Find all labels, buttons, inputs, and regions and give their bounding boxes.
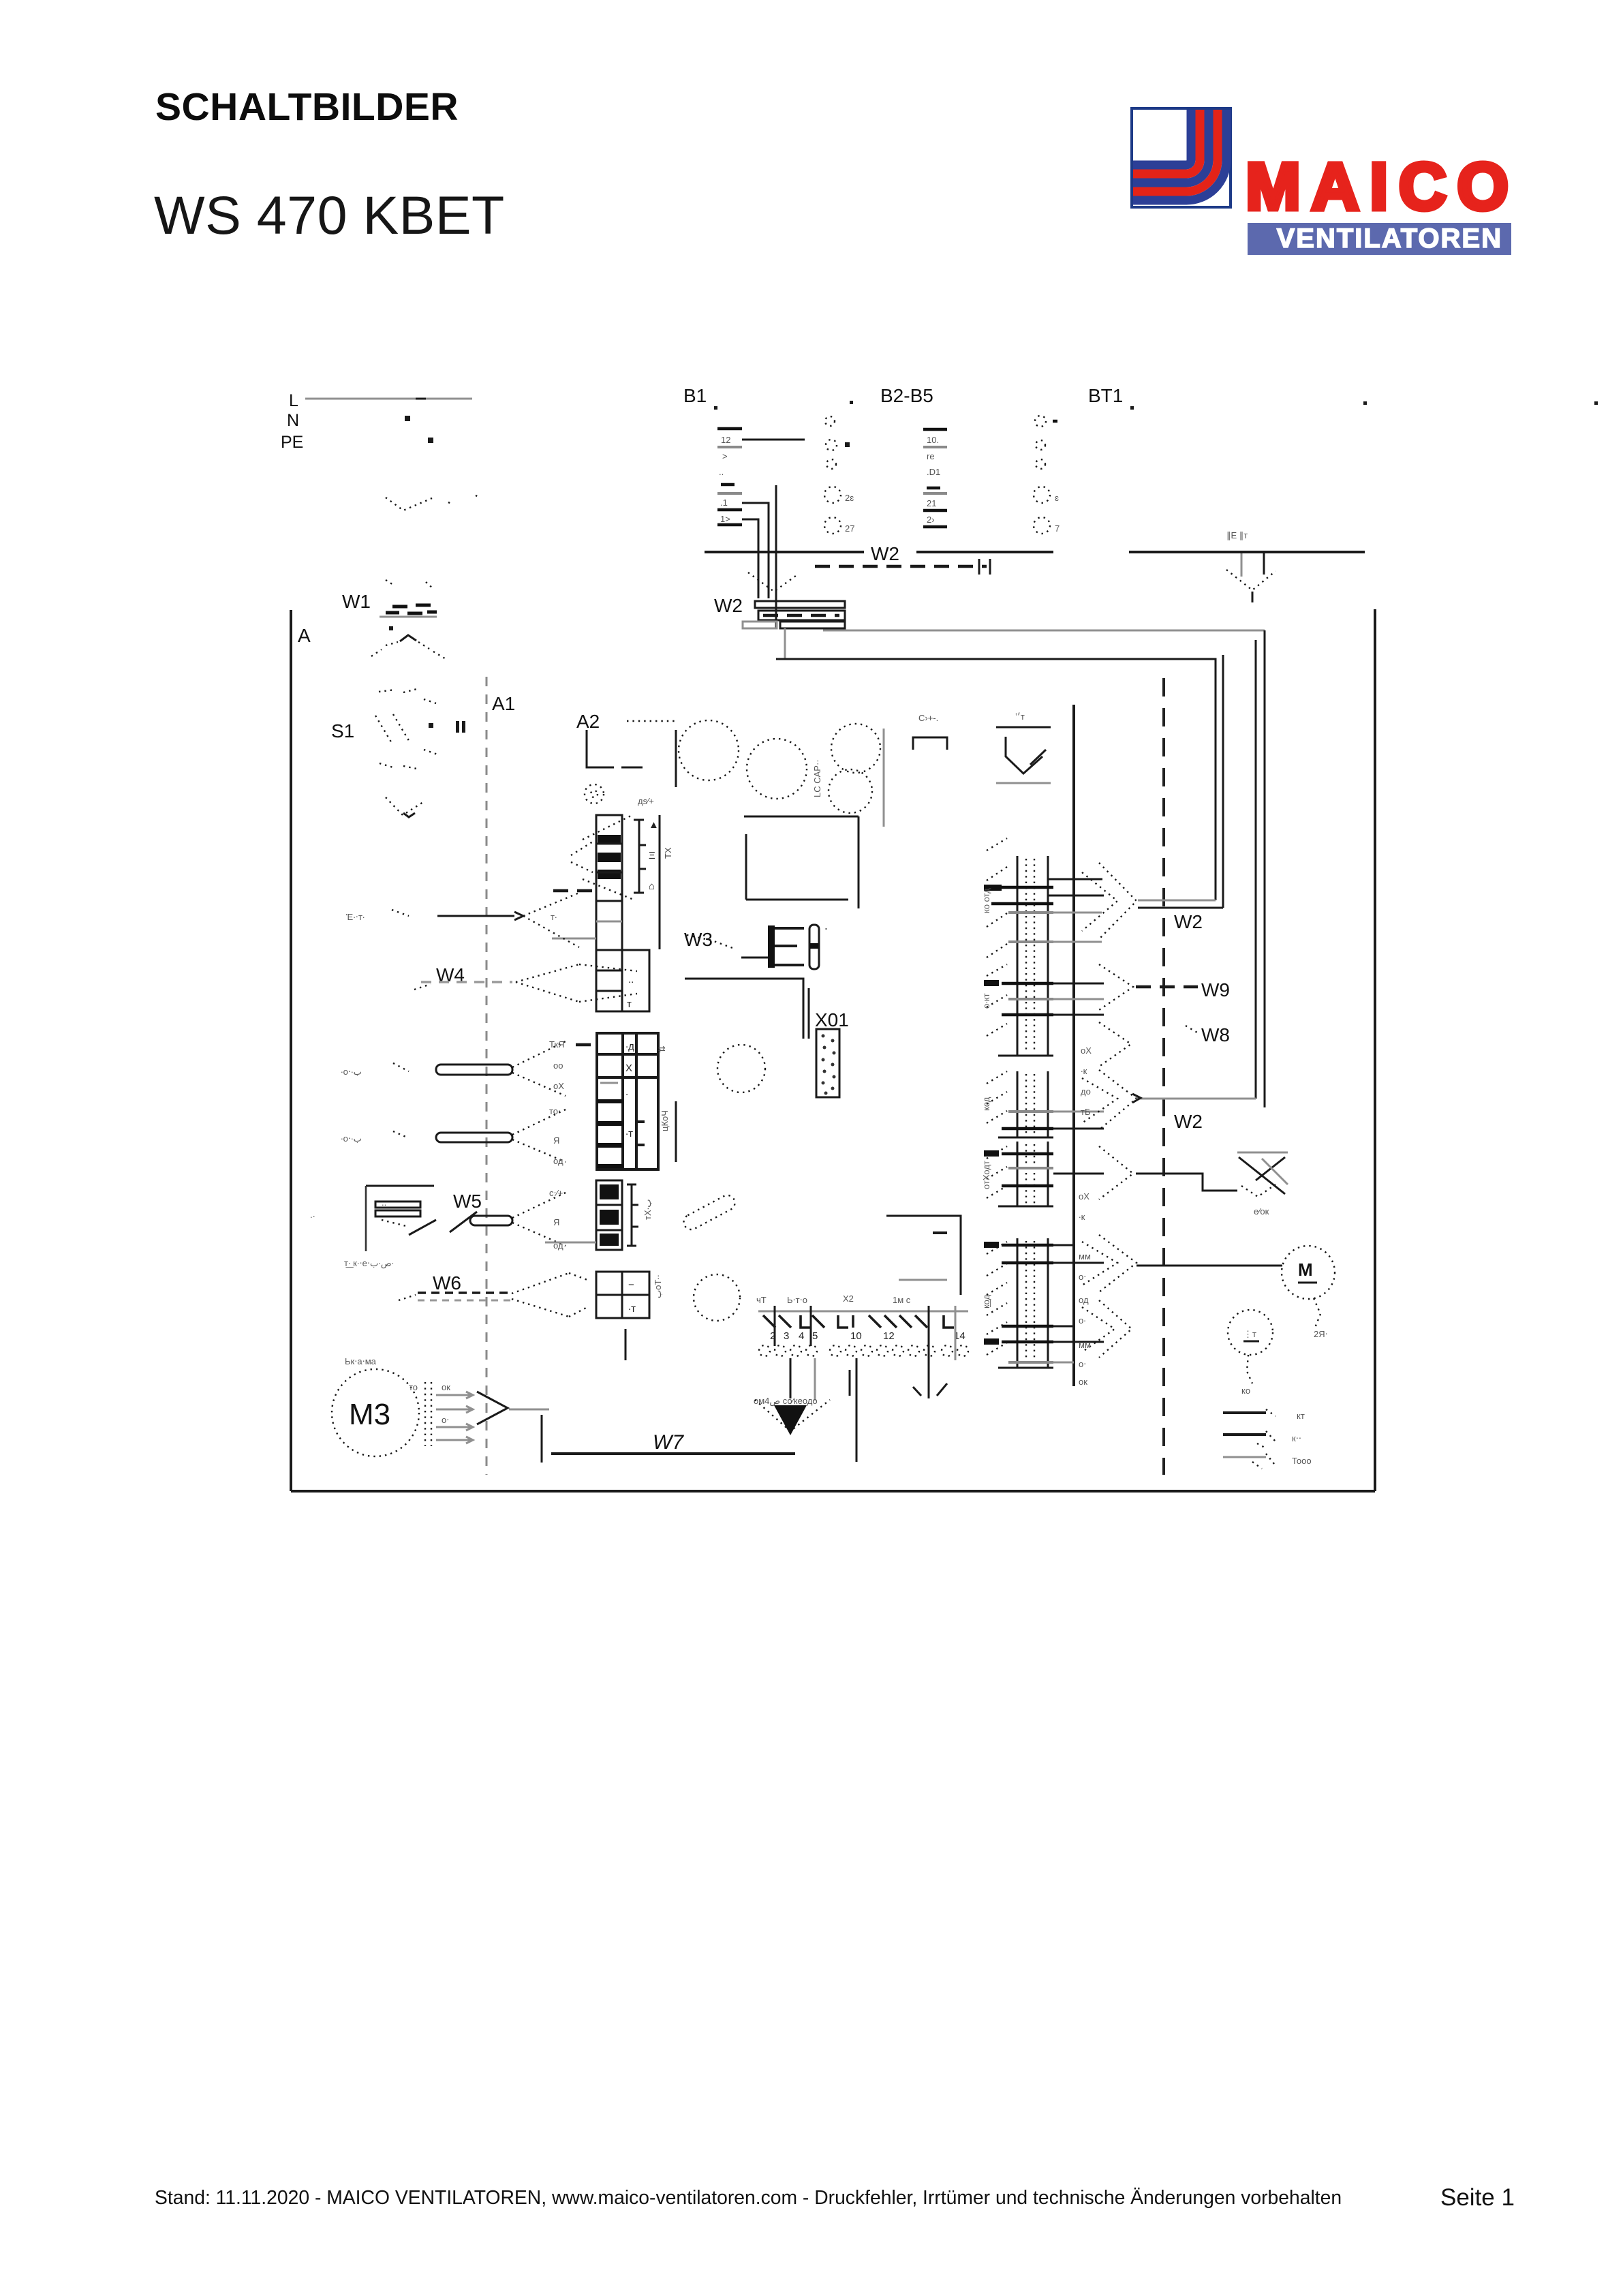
svg-text:2Я⋅: 2Я⋅ xyxy=(1314,1329,1328,1339)
svg-text:Ьк⋅а⋅ма: Ьк⋅а⋅ма xyxy=(345,1356,377,1366)
svg-text:2›: 2› xyxy=(927,515,935,525)
svg-text:ко: ко xyxy=(1241,1386,1250,1396)
svg-text:·т: ·т xyxy=(625,1128,633,1139)
svg-text:A2: A2 xyxy=(576,711,600,732)
svg-text:re: re xyxy=(927,451,935,461)
svg-text:оХ: оХ xyxy=(553,1081,564,1091)
svg-text:7: 7 xyxy=(1055,523,1060,534)
svg-text:W5: W5 xyxy=(453,1191,482,1212)
svg-text:12: 12 xyxy=(883,1330,895,1342)
svg-text:12: 12 xyxy=(721,435,730,445)
svg-text:1м с: 1м с xyxy=(893,1295,911,1305)
svg-text:Έ·⋅т·: Έ·⋅т· xyxy=(345,912,365,922)
svg-text:о·кт: о·кт xyxy=(981,993,991,1009)
svg-text:мм: мм xyxy=(1079,1251,1091,1261)
svg-text:1>: 1> xyxy=(720,514,730,524)
svg-text:⌂: ⌂ xyxy=(649,881,655,892)
svg-text:·: · xyxy=(625,1088,628,1100)
svg-text:W2: W2 xyxy=(1174,911,1203,932)
svg-text:L: L xyxy=(289,391,298,410)
svg-text:Я: Я xyxy=(553,1217,559,1227)
svg-text:код: код xyxy=(981,1097,991,1111)
svg-text:оо: оо xyxy=(553,1060,563,1071)
svg-text:W6: W6 xyxy=(433,1272,461,1294)
svg-text:▲: ▲ xyxy=(649,819,659,831)
svg-text:тБ: тБ xyxy=(1081,1107,1091,1117)
svg-text:M3: M3 xyxy=(349,1398,390,1431)
svg-text:дѕ⁄+: дѕ⁄+ xyxy=(638,796,654,806)
svg-text:о⋅: о⋅ xyxy=(1079,1272,1086,1282)
svg-text:21: 21 xyxy=(927,498,936,508)
svg-text:A: A xyxy=(298,625,311,646)
svg-text:кт: кт xyxy=(1297,1411,1305,1421)
svg-text:Ь⋅т⋅о: Ь⋅т⋅о xyxy=(787,1295,807,1305)
svg-text:ок: ок xyxy=(1079,1377,1087,1387)
svg-text:W7: W7 xyxy=(653,1431,684,1454)
svg-text:оХ: оХ xyxy=(1079,1191,1089,1201)
svg-text:о⋅: о⋅ xyxy=(1079,1359,1086,1369)
svg-text:с⋅⁄+: с⋅⁄+ xyxy=(549,1188,563,1198)
svg-text:ТХ: ТХ xyxy=(663,847,673,859)
svg-text:·к: ·к xyxy=(1081,1066,1087,1076)
svg-text:··: ·· xyxy=(382,1199,386,1210)
svg-text:тХ·ب: тХ·ب xyxy=(643,1199,653,1221)
svg-text:5: 5 xyxy=(812,1330,818,1342)
svg-text:W3: W3 xyxy=(684,929,713,950)
svg-text:е⁄ок: е⁄ок xyxy=(1254,1206,1269,1216)
svg-text:то⋅: то⋅ xyxy=(549,1106,561,1116)
svg-text:⋅: ⋅ xyxy=(824,923,828,935)
svg-text:цКоЧ: цКоЧ xyxy=(660,1110,670,1131)
svg-text:ɛ: ɛ xyxy=(1055,493,1059,503)
svg-text:W2: W2 xyxy=(1174,1111,1203,1132)
svg-text:M: M xyxy=(1298,1259,1313,1280)
svg-text:о⋅: о⋅ xyxy=(442,1415,449,1425)
svg-text:−: − xyxy=(628,1279,634,1291)
svg-text:2ɛ: 2ɛ xyxy=(845,493,854,503)
svg-text:од: од xyxy=(553,1156,563,1166)
svg-text:B1: B1 xyxy=(683,385,707,406)
svg-text:10.: 10. xyxy=(927,435,939,445)
svg-text:т: т xyxy=(627,998,632,1010)
svg-text:к͟од: к͟од xyxy=(981,1294,991,1308)
svg-text:W2: W2 xyxy=(714,595,743,616)
svg-text:мм: мм xyxy=(1079,1340,1091,1350)
svg-text:·о⋅·ب: ·о⋅·ب xyxy=(341,1133,362,1144)
svg-text:B2-B5: B2-B5 xyxy=(880,385,933,406)
svg-text:оХ: оХ xyxy=(1081,1045,1092,1056)
svg-text:..: .. xyxy=(719,467,724,477)
svg-text:BT1: BT1 xyxy=(1088,385,1123,406)
svg-text:W8: W8 xyxy=(1201,1024,1230,1045)
svg-text:·о⋅·ب: ·о⋅·ب xyxy=(341,1067,362,1077)
svg-text:4: 4 xyxy=(799,1330,804,1342)
svg-text:чТ: чТ xyxy=(756,1295,767,1305)
svg-text:A1: A1 xyxy=(492,693,515,714)
svg-text:W9: W9 xyxy=(1201,979,1230,1000)
svg-text:·д: ·д xyxy=(625,1041,634,1052)
svg-text:··: ·· xyxy=(628,976,634,988)
svg-text:то: то xyxy=(409,1382,418,1392)
svg-text:X01: X01 xyxy=(815,1009,849,1030)
svg-text:Х2: Х2 xyxy=(843,1294,854,1304)
svg-text:омص4 со⁄кеодо: омص4 со⁄кеодо xyxy=(754,1396,818,1407)
svg-text:Ξ: Ξ xyxy=(649,850,655,861)
svg-text:>: > xyxy=(722,451,728,461)
svg-text:N: N xyxy=(287,411,299,430)
svg-text:⇅: ⇅ xyxy=(657,1045,667,1053)
svg-text:بоТ··: بоТ·· xyxy=(653,1274,663,1298)
svg-text:т·: т· xyxy=(551,912,557,922)
svg-text:отХодт: отХодт xyxy=(981,1161,991,1189)
svg-text:10: 10 xyxy=(850,1330,862,1342)
svg-text:т͟· к·⋅е⋅ص·ب·: т͟· к·⋅е⋅ص·ب· xyxy=(344,1258,394,1269)
svg-text:Я: Я xyxy=(553,1135,559,1146)
svg-text:ТкЯ: ТкЯ xyxy=(549,1039,564,1050)
svg-text:⋮т: ⋮т xyxy=(1243,1329,1256,1339)
svg-text:о·: о· xyxy=(1079,1315,1086,1326)
svg-text:Тооо: Тооо xyxy=(1292,1456,1312,1466)
svg-text:S1: S1 xyxy=(331,720,354,741)
svg-text:.1: .1 xyxy=(720,498,728,508)
svg-text:к⋅⋅: к⋅⋅ xyxy=(1292,1433,1301,1443)
svg-text:.D1: .D1 xyxy=(927,467,940,477)
svg-text:3: 3 xyxy=(784,1330,789,1342)
svg-text:од: од xyxy=(1079,1295,1089,1305)
svg-text:ок: ок xyxy=(442,1382,450,1392)
svg-text:W2: W2 xyxy=(871,543,899,564)
svg-text:ко отд: ко отд xyxy=(981,888,991,913)
svg-text:·⋅: ·⋅ xyxy=(310,1212,315,1222)
svg-text:W1: W1 xyxy=(342,591,371,612)
svg-text:·к: ·к xyxy=(1079,1212,1085,1222)
svg-text:до: до xyxy=(1081,1086,1091,1097)
svg-text:PE: PE xyxy=(281,433,303,452)
svg-text:C›+-.: C›+-. xyxy=(918,713,938,723)
svg-text:·т: ·т xyxy=(628,1303,636,1315)
svg-text:LC CAP··: LC CAP·· xyxy=(812,759,822,797)
svg-text:ʽ׳т: ʽ׳т xyxy=(1015,711,1025,722)
svg-text:Х: Х xyxy=(625,1062,632,1074)
svg-text:∥E ∥т: ∥E ∥т xyxy=(1226,530,1248,540)
svg-text:27: 27 xyxy=(845,523,854,534)
